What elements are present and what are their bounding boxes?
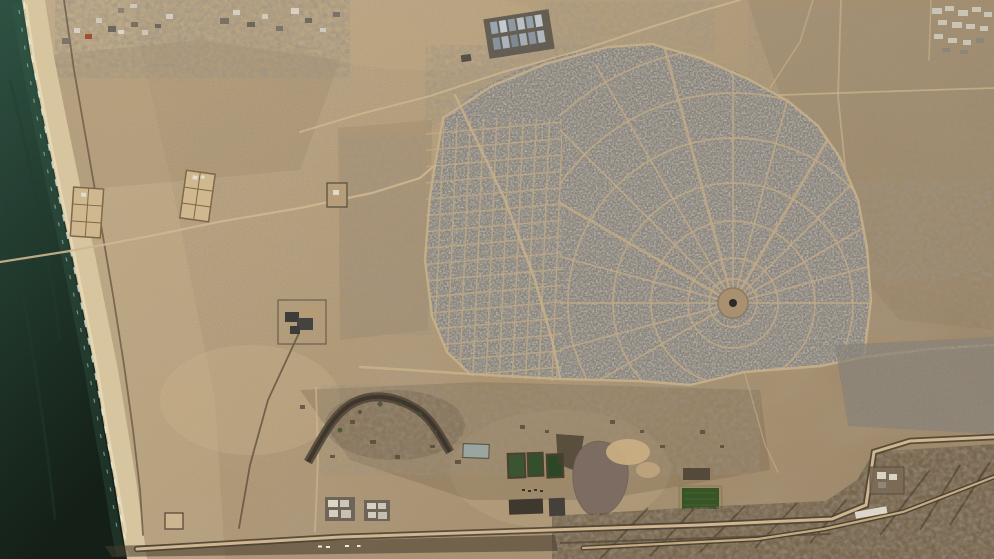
- treatment-pond-2: [528, 453, 544, 477]
- bottom-right-district: [835, 337, 994, 434]
- walled-enclosure-north: [180, 170, 215, 222]
- satellite-map-view[interactable]: [0, 0, 994, 559]
- treatment-ponds: [508, 452, 564, 479]
- satellite-image: [0, 0, 994, 559]
- dark-patch: [683, 468, 710, 480]
- animal-pen: [165, 513, 183, 529]
- ruin-speckle-west-fringe: [340, 135, 432, 335]
- sand-dune: [606, 439, 650, 465]
- white-building-compound-2: [364, 500, 390, 521]
- sludge-basin-1: [509, 499, 544, 515]
- sludge-basin-2: [549, 498, 566, 517]
- plaza-center-structure: [729, 299, 737, 307]
- border-compound: [870, 467, 904, 494]
- ruin-speckle-topleft: [55, 0, 350, 78]
- bottom-right-district-texture: [835, 337, 994, 434]
- water-basin: [463, 444, 489, 459]
- white-building-compound-1: [325, 497, 355, 521]
- treatment-pond-1: [508, 453, 526, 478]
- sand-dune-small: [636, 462, 660, 478]
- walled-enclosure-south: [70, 187, 103, 238]
- small-walled-compound: [327, 183, 347, 207]
- ruin-speckle-mid-right: [855, 180, 994, 280]
